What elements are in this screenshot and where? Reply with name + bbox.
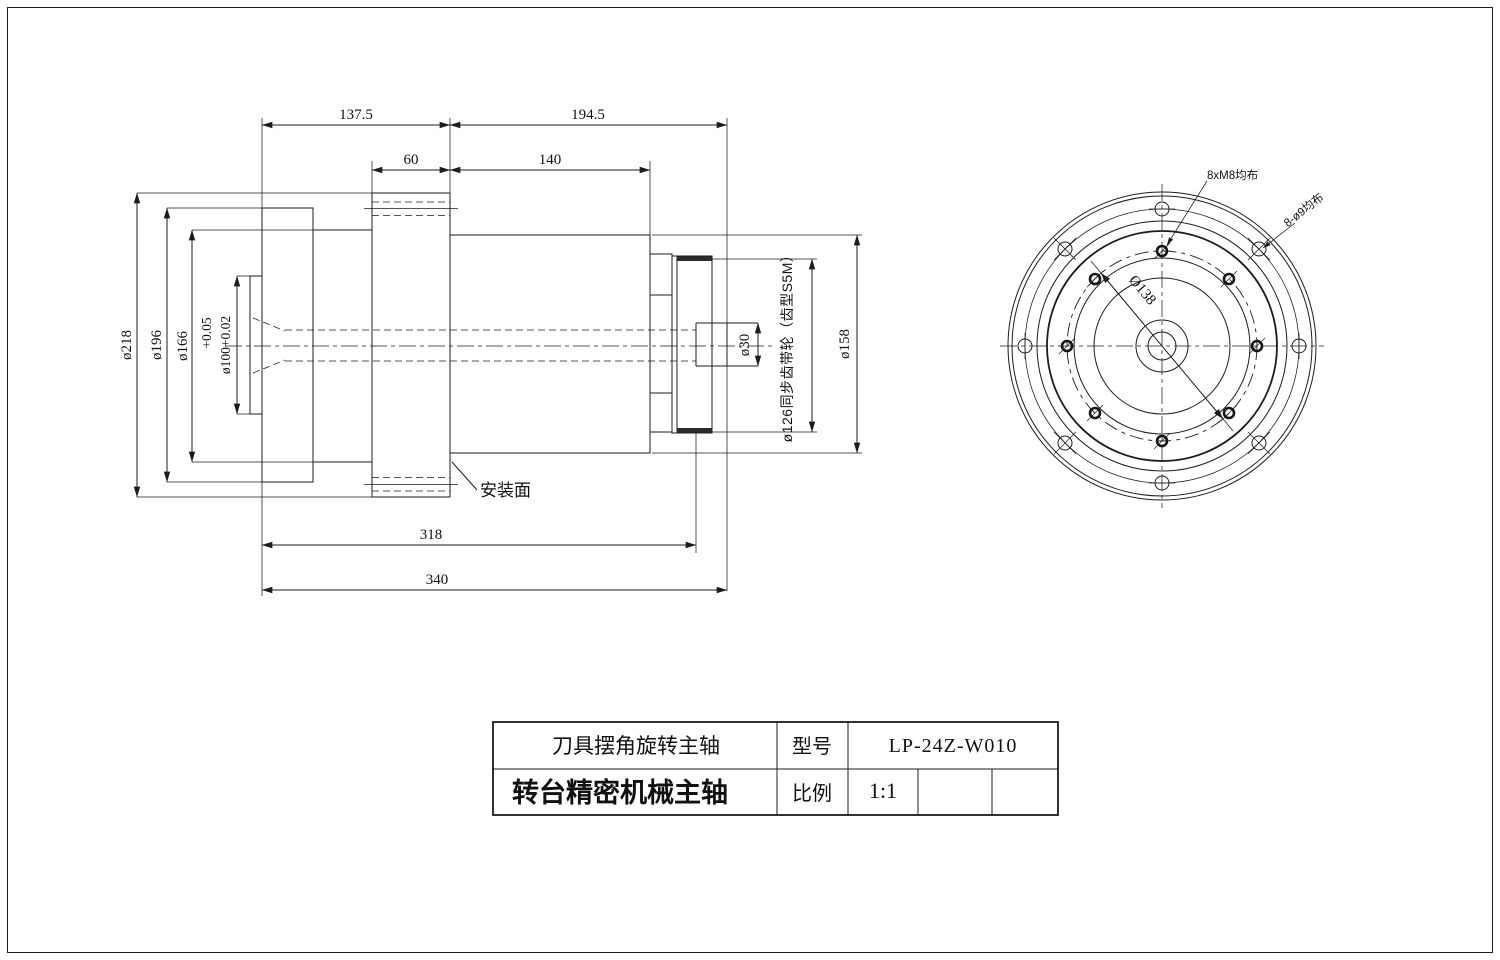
title-model-value: LP-24Z-W010 <box>889 735 1018 757</box>
dim-340: 340 <box>426 572 449 588</box>
drawing-sheet: 137.5 194.5 60 140 318 340 ø218 ø196 ø16… <box>0 0 1500 960</box>
title-scale-label: 比例 <box>792 782 832 805</box>
dia-100: ø100+0.02 <box>218 316 233 374</box>
end-view: Ø138 8xM8均布 8-ø9均布 <box>1000 169 1326 508</box>
side-view-outline <box>250 193 758 497</box>
side-view: 137.5 194.5 60 140 318 340 ø218 ø196 ø16… <box>119 107 862 596</box>
title-scale-value: 1:1 <box>869 778 897 803</box>
title-product-name: 刀具摆角旋转主轴 <box>552 735 720 758</box>
bolt-circle-dia-label: Ø138 <box>1125 273 1159 309</box>
dimension-lines <box>137 125 857 590</box>
dia-196: ø196 <box>149 330 165 361</box>
dim-137-5: 137.5 <box>339 107 373 123</box>
mounting-face-label: 安装面 <box>480 481 531 500</box>
dia-100-tolerance: +0.05 <box>199 317 214 348</box>
m8-leader: 8xM8均布 <box>1167 169 1258 245</box>
pulley-label: ø126同步齿带轮（齿型S5M） <box>779 248 795 443</box>
title-series-name: 转台精密机械主轴 <box>512 777 728 808</box>
dia-158: ø158 <box>837 329 853 359</box>
dia-218: ø218 <box>119 330 135 360</box>
m8-leader-label: 8xM8均布 <box>1207 169 1258 182</box>
cad-drawing: 137.5 194.5 60 140 318 340 ø218 ø196 ø16… <box>0 0 1500 960</box>
pulley-tooth-band-bottom <box>677 428 712 433</box>
dim-318: 318 <box>420 527 443 543</box>
pulley-tooth-band-top <box>677 257 712 262</box>
o9-leader-label: 8-ø9均布 <box>1281 191 1326 230</box>
side-view-hidden-lines <box>253 202 696 491</box>
mounting-face-leader <box>452 462 477 490</box>
dim-194-5: 194.5 <box>571 107 605 123</box>
dia-166: ø166 <box>175 331 191 362</box>
dia-30: ø30 <box>737 334 753 357</box>
extension-lines <box>137 118 862 596</box>
title-block: 刀具摆角旋转主轴 型号 LP-24Z-W010 转台精密机械主轴 比例 1:1 <box>493 722 1058 815</box>
sheet-border <box>8 8 1493 953</box>
dim-140: 140 <box>539 152 562 168</box>
dim-60: 60 <box>404 152 419 168</box>
title-model-label: 型号 <box>792 735 832 758</box>
